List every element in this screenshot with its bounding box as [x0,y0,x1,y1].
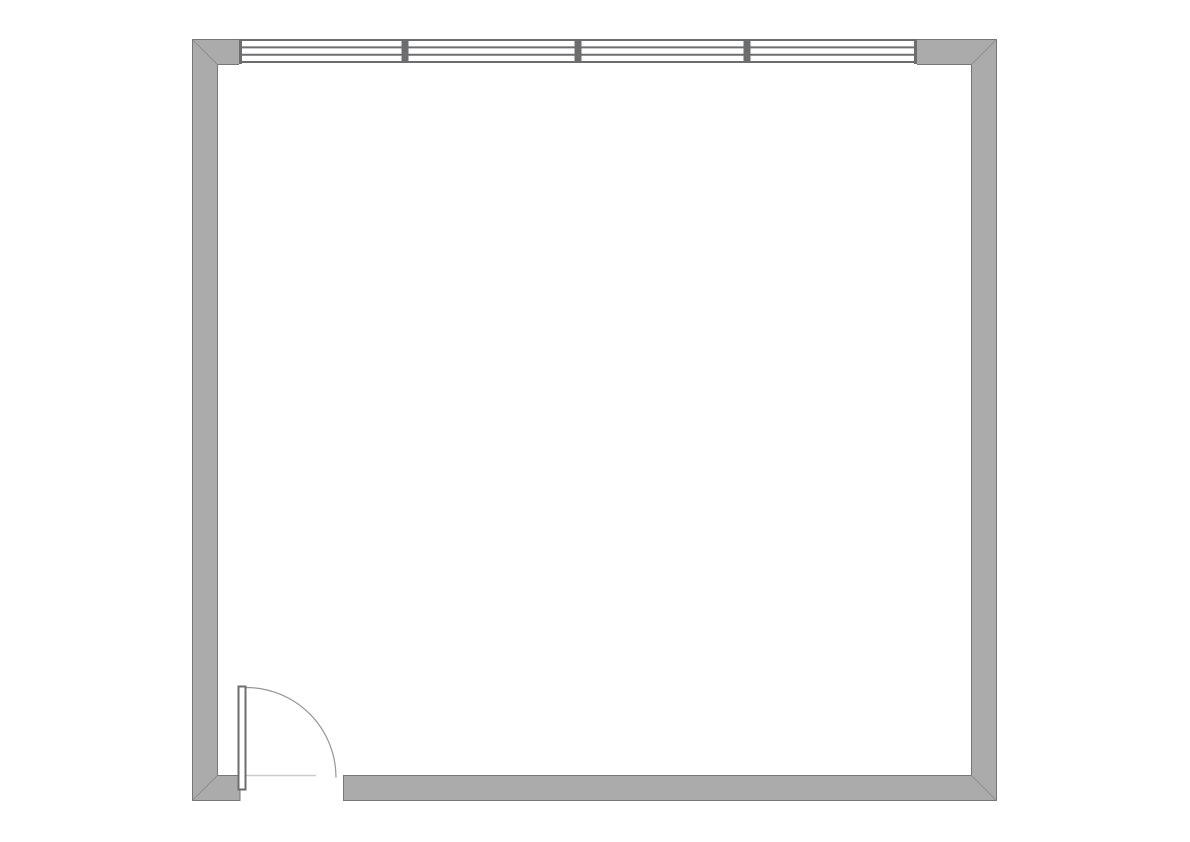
top-wall-window [239,39,917,64]
wall-top-right-segment [917,39,997,65]
door-leaf [239,687,246,790]
walls [192,39,997,801]
wall-right [971,39,997,801]
wall-corner-miters [193,40,997,801]
window-mullion-1 [402,40,409,62]
floor-plan-page [0,0,1190,842]
wall-left [192,39,218,801]
wall-bottom-right-segment [343,775,997,801]
wall-top-left-segment [192,39,239,65]
wall-bottom-left-segment [192,775,240,801]
wall-outlines [192,39,997,801]
door-swing-arc [246,688,336,778]
window-mullion-2 [575,40,582,62]
floor-plan-drawing [0,0,1190,842]
window-frame-left [239,39,242,64]
window-frame-right [914,39,917,64]
window-mullion-3 [744,40,751,62]
entry-door [239,687,337,790]
